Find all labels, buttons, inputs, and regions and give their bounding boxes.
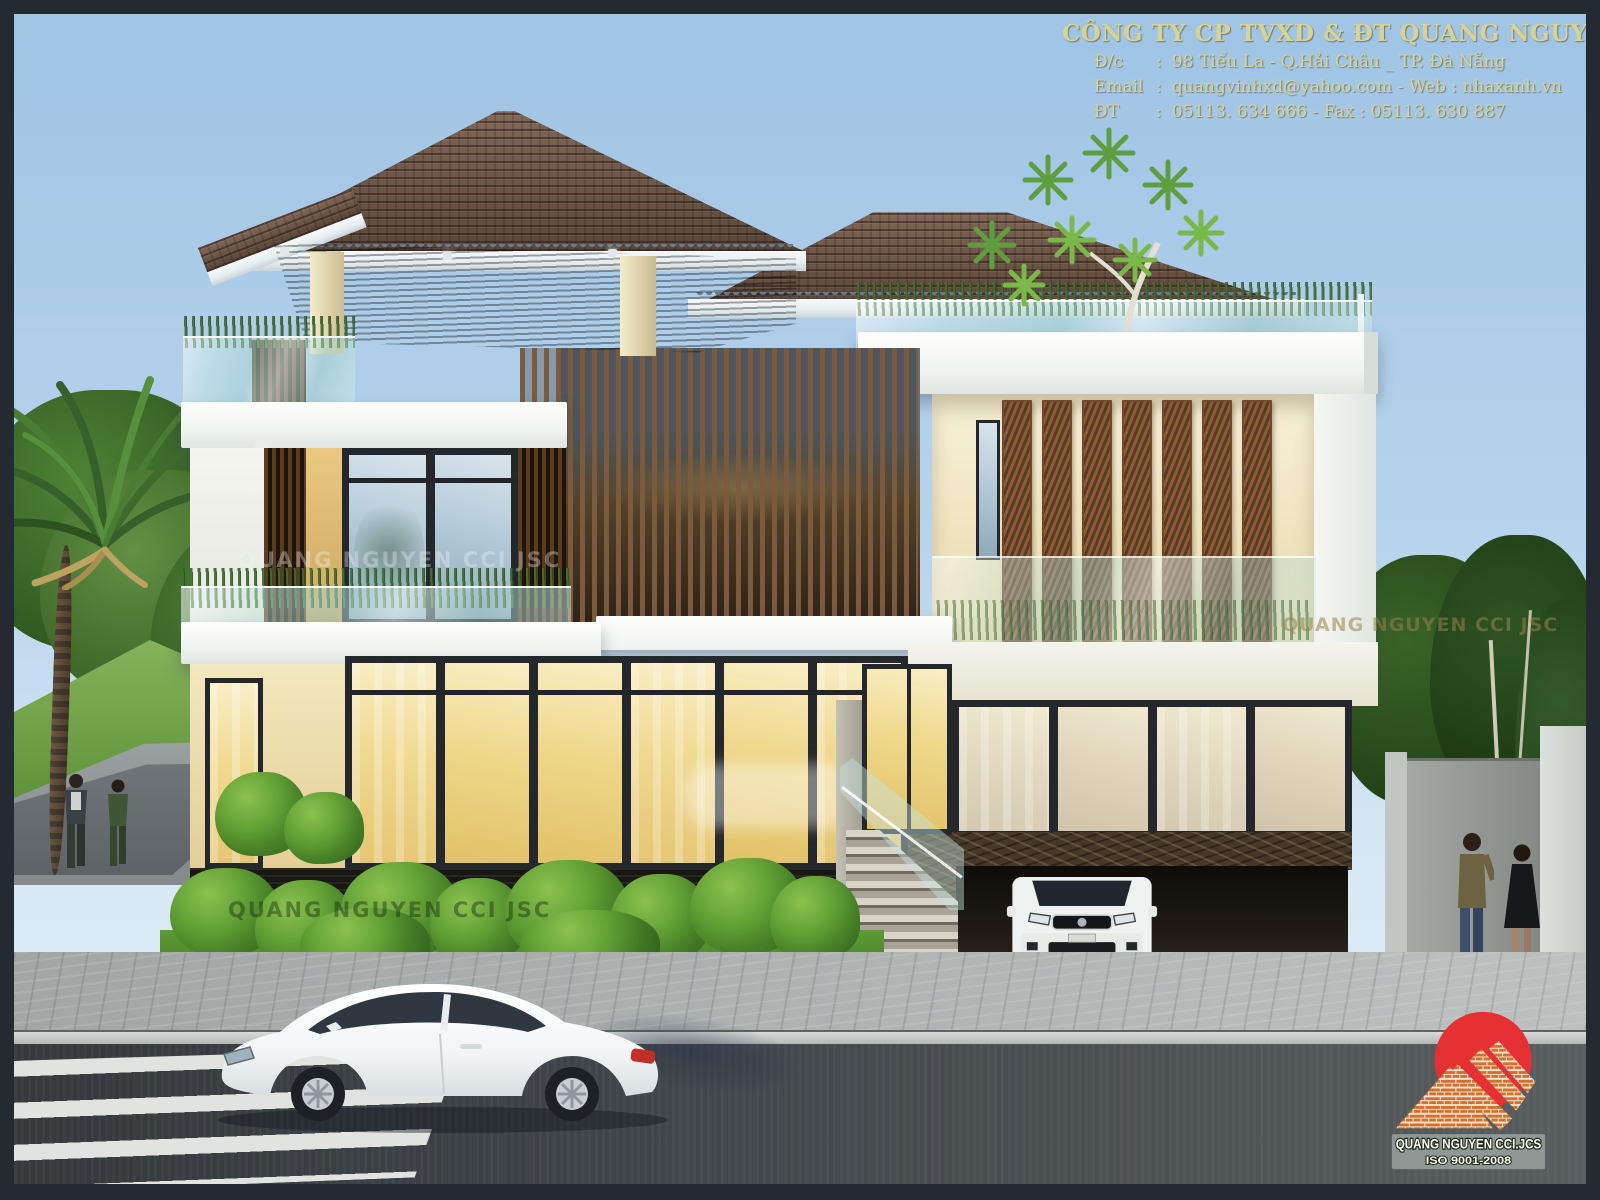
address-label: Đ/c bbox=[1094, 50, 1156, 75]
car-shadow bbox=[218, 1107, 668, 1133]
car-spokes bbox=[304, 1080, 332, 1108]
separator: : bbox=[1156, 50, 1172, 75]
ground-window-wall bbox=[345, 656, 908, 870]
address-row: Đ/c : 98 Tiểu La - Q.Hải Châu _ TP. Đà N… bbox=[1094, 50, 1562, 75]
frame-border-right bbox=[1586, 0, 1600, 1200]
window-pane bbox=[979, 423, 997, 557]
phone-row: ĐT : 05113. 634 666 - Fax : 05113. 630 8… bbox=[1094, 100, 1562, 125]
balcony-plants bbox=[936, 600, 1312, 640]
company-details: Đ/c : 98 Tiểu La - Q.Hải Châu _ TP. Đà N… bbox=[1094, 50, 1562, 125]
car-spokes bbox=[558, 1080, 586, 1108]
wood-slat-screen bbox=[520, 348, 918, 640]
soffit-light bbox=[280, 247, 289, 255]
pedestrian-leg bbox=[110, 826, 117, 866]
watermark: QUANG NGUYEN CCI JSC bbox=[1282, 614, 1558, 636]
logo-iso-label: ISO 9001-2008 bbox=[1426, 1155, 1511, 1167]
coupe-car bbox=[208, 944, 678, 1144]
suv-foglight bbox=[1027, 942, 1038, 950]
curtain bbox=[1157, 707, 1247, 831]
roof-garden-tree bbox=[930, 125, 1260, 343]
curtain bbox=[959, 707, 1049, 831]
tree-foliage bbox=[970, 130, 1222, 304]
ground-window-wall bbox=[952, 700, 1352, 838]
louver-box-side-wall bbox=[1314, 394, 1376, 642]
suv-emblem bbox=[1077, 918, 1086, 927]
pedestrian-leg bbox=[67, 824, 75, 868]
soffit-light bbox=[608, 249, 617, 257]
pedestrian-shirt bbox=[71, 792, 81, 810]
pedestrian-head bbox=[69, 774, 83, 788]
email-label: Email bbox=[1094, 75, 1156, 100]
car-reflection bbox=[685, 764, 855, 828]
suv-mirror bbox=[1007, 906, 1016, 917]
hedge-bush bbox=[770, 876, 860, 962]
window-pane bbox=[959, 707, 1049, 831]
suv-foglight bbox=[1126, 942, 1137, 950]
right-wing-slab-face bbox=[1364, 332, 1378, 394]
company-logo: QUANG NGUYEN CCI.JCS ISO 9001-2008 bbox=[1386, 1000, 1551, 1180]
frame-border-left bbox=[0, 0, 14, 1200]
company-header: CÔNG TY CP TVXD & ĐT QUANG NGUYỄN Đ/c : … bbox=[1062, 20, 1562, 125]
small-window bbox=[976, 420, 1000, 560]
pedestrian-head bbox=[1514, 845, 1531, 862]
architectural-rendering: QUANG NGUYEN CCI JSC QUANG NGUYEN CCI JS… bbox=[0, 0, 1600, 1200]
right-wing-slab bbox=[858, 332, 1378, 394]
soffit-light bbox=[443, 252, 452, 260]
window-transom bbox=[345, 690, 908, 695]
pedestrian bbox=[56, 772, 96, 872]
pedestrian-leg bbox=[119, 826, 126, 864]
balcony-glass-railing bbox=[183, 336, 355, 408]
phone-label: ĐT bbox=[1094, 100, 1156, 125]
hedge-bush bbox=[284, 792, 364, 864]
logo-company-name: QUANG NGUYEN CCI.JCS bbox=[1396, 1136, 1542, 1152]
email-value: quangvinhxd@yahoo.com - Web : nhaxanh.vn bbox=[1172, 75, 1562, 100]
window-pane bbox=[1255, 707, 1345, 831]
ground-wall bbox=[908, 642, 1378, 706]
pedestrian-head bbox=[112, 780, 125, 793]
marble-band bbox=[908, 832, 1352, 870]
pedestrian-head bbox=[1463, 833, 1481, 851]
frame-border-bottom bbox=[0, 1184, 1600, 1200]
separator: : bbox=[1156, 75, 1172, 100]
address-value: 98 Tiểu La - Q.Hải Châu _ TP. Đà Nẵng bbox=[1172, 50, 1505, 75]
pedestrian-dress bbox=[1504, 864, 1540, 928]
window-pane bbox=[1157, 707, 1247, 831]
pedestrian-leg bbox=[77, 824, 85, 866]
wall-pillar bbox=[1385, 752, 1407, 968]
pedestrian bbox=[100, 778, 136, 870]
car-door-handle bbox=[460, 1044, 482, 1049]
pillar bbox=[620, 256, 656, 356]
phone-value: 05113. 634 666 - Fax : 05113. 630 887 bbox=[1172, 100, 1506, 125]
pedestrian-top bbox=[108, 794, 128, 826]
suv-mirror bbox=[1148, 906, 1157, 917]
suv-plate bbox=[1068, 934, 1095, 942]
watermark: QUANG NGUYEN CCI JSC bbox=[228, 898, 551, 922]
suv-windshield bbox=[1032, 881, 1131, 906]
upper-slab bbox=[181, 402, 567, 448]
watermark: QUANG NGUYEN CCI JSC bbox=[238, 548, 561, 572]
pedestrian-jacket bbox=[1458, 854, 1486, 908]
company-name: CÔNG TY CP TVXD & ĐT QUANG NGUYỄN bbox=[1062, 20, 1562, 47]
email-row: Email : quangvinhxd@yahoo.com - Web : nh… bbox=[1094, 75, 1562, 100]
window-transom bbox=[342, 478, 518, 483]
separator: : bbox=[1156, 100, 1172, 125]
frame-border-top bbox=[0, 0, 1600, 14]
window-pane bbox=[1058, 707, 1148, 831]
